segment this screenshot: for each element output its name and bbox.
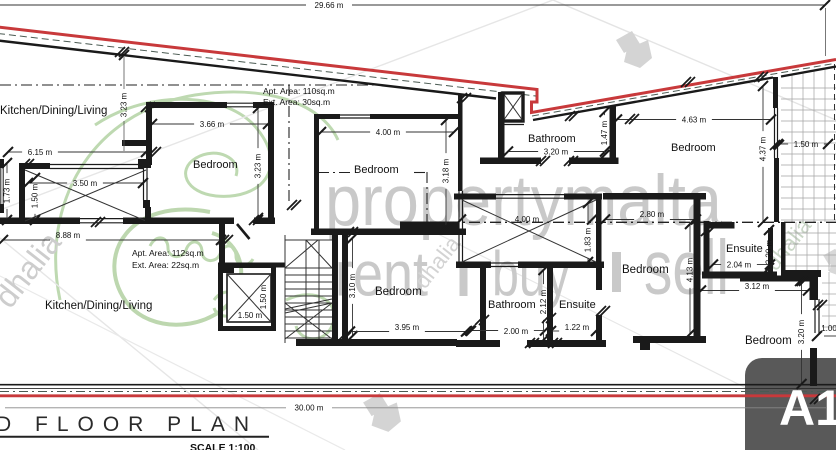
svg-text:4.00 m: 4.00 m — [376, 128, 401, 137]
svg-text:3.66 m: 3.66 m — [200, 120, 225, 129]
svg-text:Bedroom: Bedroom — [193, 159, 238, 171]
svg-text:2.20 m: 2.20 m — [765, 239, 774, 264]
svg-text:A1: A1 — [779, 380, 836, 436]
svg-text:Bathroom: Bathroom — [488, 299, 536, 311]
svg-text:2.04 m: 2.04 m — [727, 261, 752, 270]
svg-text:1.50 m: 1.50 m — [794, 140, 819, 149]
svg-text:3.20 m: 3.20 m — [797, 319, 806, 344]
svg-text:1.50 m: 1.50 m — [259, 284, 268, 309]
svg-text:1.83 m: 1.83 m — [584, 227, 593, 252]
svg-text:3.18 m: 3.18 m — [442, 158, 451, 183]
svg-text:Ext. Area: 30sq.m: Ext. Area: 30sq.m — [263, 97, 330, 107]
svg-text:1.22 m: 1.22 m — [565, 323, 590, 332]
svg-text:4.37 m: 4.37 m — [759, 136, 768, 161]
svg-text:Kitchen/Dining/Living: Kitchen/Dining/Living — [45, 300, 152, 312]
svg-text:Kitchen/Dining/Living: Kitchen/Dining/Living — [0, 105, 107, 117]
svg-text:30.00 m: 30.00 m — [295, 404, 324, 413]
svg-text:2.80 m: 2.80 m — [640, 210, 665, 219]
svg-text:1.73 m: 1.73 m — [3, 178, 12, 203]
svg-text:3.50 m: 3.50 m — [73, 179, 98, 188]
svg-text:2.00 m: 2.00 m — [504, 327, 529, 336]
svg-text:Bedroom: Bedroom — [745, 335, 792, 347]
svg-text:Bedroom: Bedroom — [375, 286, 422, 298]
svg-text:6.15 m: 6.15 m — [28, 148, 53, 157]
svg-text:3.23 m: 3.23 m — [120, 92, 129, 117]
svg-text:3.20 m: 3.20 m — [544, 147, 569, 156]
svg-text:D FLOOR PLAN: D FLOOR PLAN — [0, 413, 258, 436]
svg-text:3.23 m: 3.23 m — [254, 153, 263, 178]
svg-text:4.00 m: 4.00 m — [515, 215, 540, 224]
svg-text:Bedroom: Bedroom — [671, 142, 716, 154]
svg-text:29.66 m: 29.66 m — [315, 1, 344, 10]
svg-text:Apt. Area: 112sq.m: Apt. Area: 112sq.m — [132, 248, 204, 258]
svg-text:Ensuite: Ensuite — [559, 299, 596, 311]
svg-text:2.12 m: 2.12 m — [539, 289, 548, 314]
svg-text:3.10 m: 3.10 m — [348, 273, 357, 298]
svg-text:8.88 m: 8.88 m — [56, 231, 81, 240]
svg-text:Ext. Area: 22sq.m: Ext. Area: 22sq.m — [132, 260, 199, 270]
svg-text:3.95 m: 3.95 m — [395, 323, 420, 332]
svg-text:4.13 m: 4.13 m — [686, 257, 695, 282]
svg-text:1.50 m: 1.50 m — [238, 311, 263, 320]
svg-text:4.63 m: 4.63 m — [682, 115, 707, 124]
svg-text:Apt. Area: 110sq.m: Apt. Area: 110sq.m — [263, 86, 335, 96]
svg-text:Bedroom: Bedroom — [354, 164, 399, 176]
svg-text:SCALE 1:100: SCALE 1:100 — [190, 442, 256, 450]
svg-text:Ensuite: Ensuite — [726, 243, 763, 255]
svg-text:Bedroom: Bedroom — [622, 264, 669, 276]
svg-text:1.00: 1.00 — [821, 324, 836, 333]
svg-text:Bathroom: Bathroom — [528, 133, 576, 145]
svg-text:1.47 m: 1.47 m — [600, 120, 609, 145]
svg-text:1.50 m: 1.50 m — [31, 183, 40, 208]
svg-text:3.12 m: 3.12 m — [745, 282, 770, 291]
